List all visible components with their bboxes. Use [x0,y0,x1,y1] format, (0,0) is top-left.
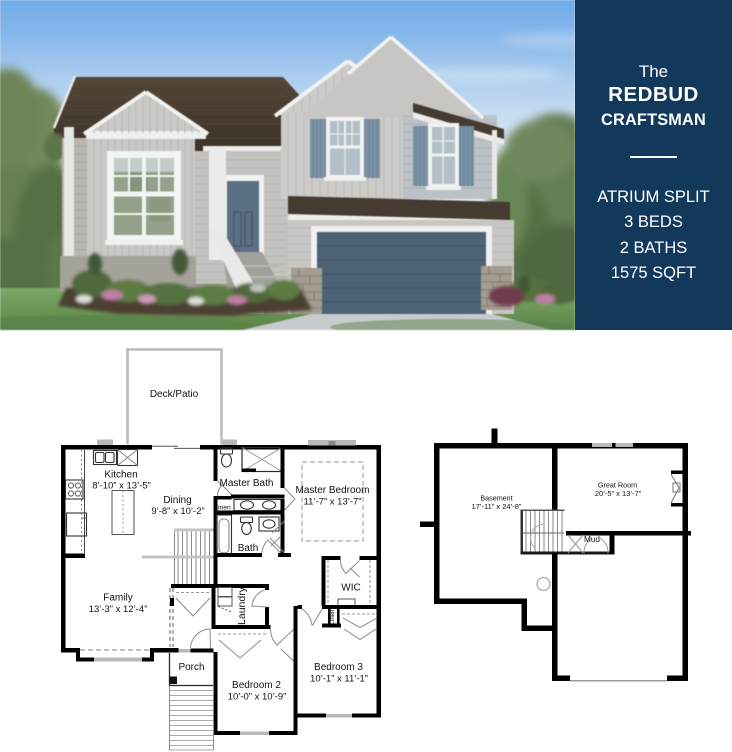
svg-text:Linen: Linen [330,610,336,625]
svg-text:8’-10” x 13’-5”: 8’-10” x 13’-5” [92,481,151,492]
svg-text:11’-7” x 13’-7”: 11’-7” x 13’-7” [304,497,362,508]
svg-text:Porch: Porch [178,662,204,673]
svg-text:Mud: Mud [584,535,600,544]
svg-text:Family: Family [103,593,132,604]
svg-text:10’-1” x 11’-1”: 10’-1” x 11’-1” [310,674,368,685]
svg-text:13’-3” x 12’-4”: 13’-3” x 12’-4” [89,604,148,615]
svg-text:Linen: Linen [214,505,231,512]
svg-text:Deck/Patio: Deck/Patio [150,389,199,400]
svg-text:Bedroom 3: Bedroom 3 [314,662,363,673]
svg-text:Dining: Dining [163,495,191,506]
svg-text:10’-0” x 10’-9”: 10’-0” x 10’-9” [228,692,287,703]
svg-text:Kitchen: Kitchen [104,470,137,481]
svg-text:17’-11” x 24’-8”: 17’-11” x 24’-8” [472,502,522,511]
svg-text:Master Bedroom: Master Bedroom [296,485,370,496]
svg-text:Laundry: Laundry [236,586,248,625]
svg-text:20’-5” x 13’-7”: 20’-5” x 13’-7” [595,489,642,498]
svg-text:Bath: Bath [238,543,259,554]
svg-text:WIC: WIC [341,583,360,594]
svg-text:Bedroom 2: Bedroom 2 [232,680,281,691]
svg-text:9’-8” x 10’-2”: 9’-8” x 10’-2” [151,506,204,517]
svg-text:Master Bath: Master Bath [220,478,274,489]
